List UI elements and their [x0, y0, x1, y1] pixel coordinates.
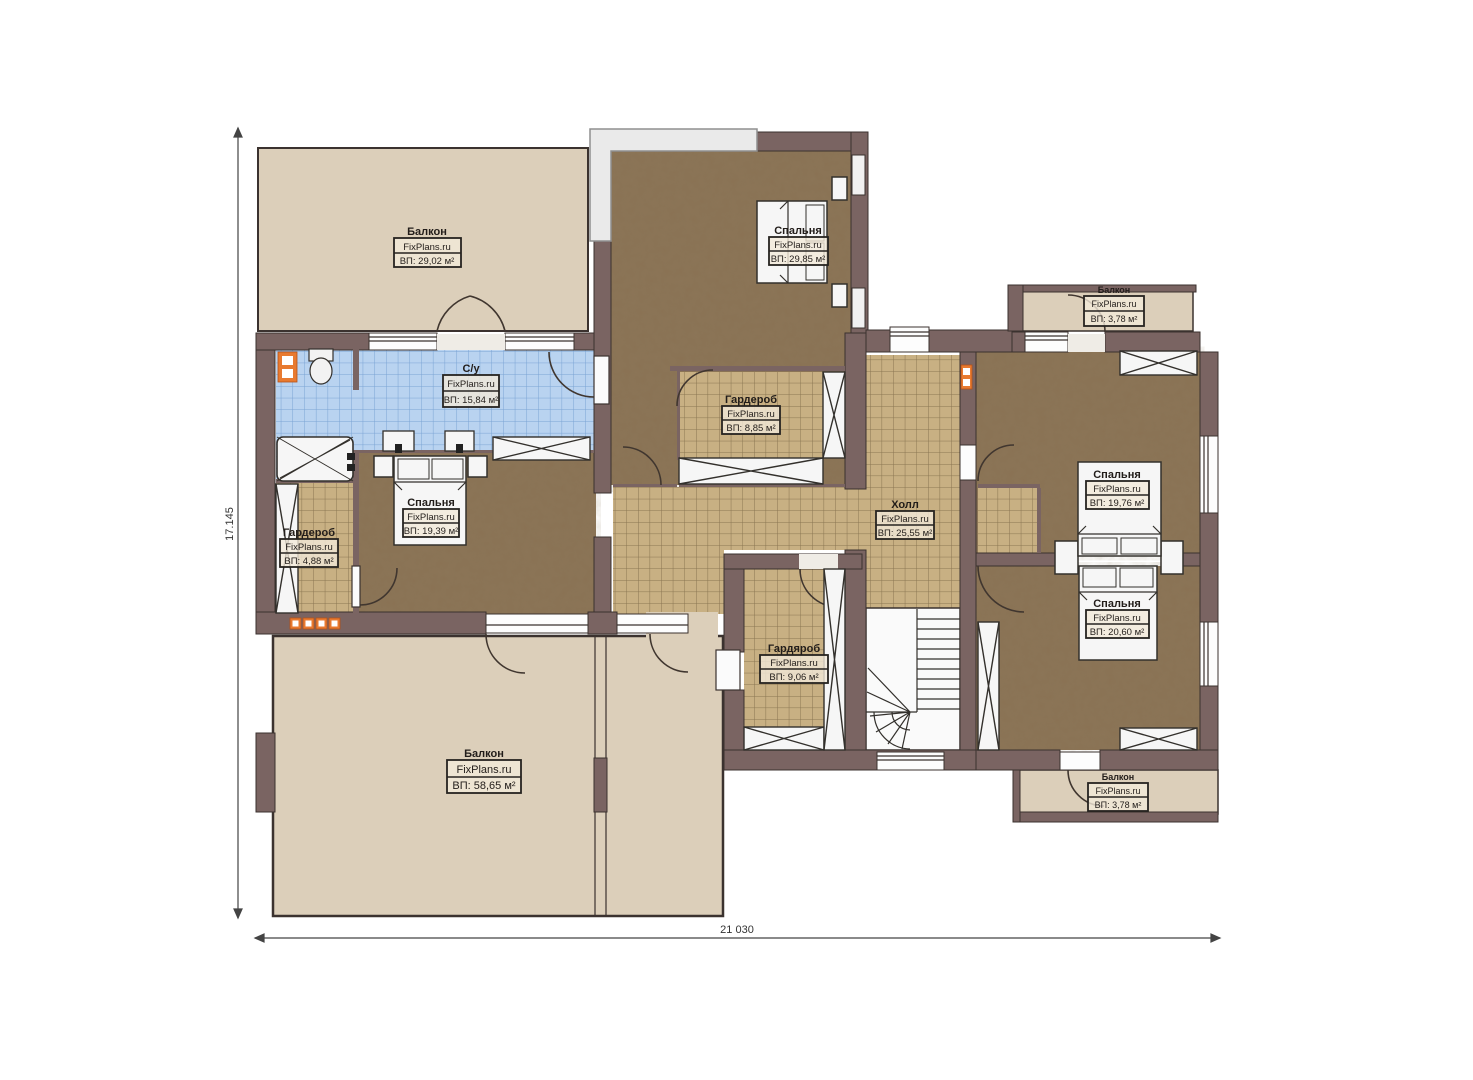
- svg-text:ВП: 3,78 м²: ВП: 3,78 м²: [1095, 800, 1142, 810]
- svg-text:FixPlans.ru: FixPlans.ru: [285, 542, 333, 553]
- svg-text:ВП: 19,76 м²: ВП: 19,76 м²: [1090, 498, 1145, 509]
- svg-text:Спальня: Спальня: [1093, 469, 1141, 481]
- svg-text:ВП: 58,65 м²: ВП: 58,65 м²: [452, 780, 516, 792]
- svg-text:FixPlans.ru: FixPlans.ru: [1093, 613, 1141, 624]
- svg-text:17.145: 17.145: [224, 507, 236, 541]
- svg-text:ВП: 9,06 м²: ВП: 9,06 м²: [769, 672, 818, 683]
- svg-text:Балкон: Балкон: [407, 226, 447, 238]
- svg-text:FixPlans.ru: FixPlans.ru: [770, 658, 818, 669]
- svg-text:FixPlans.ru: FixPlans.ru: [881, 514, 929, 525]
- svg-text:FixPlans.ru: FixPlans.ru: [727, 409, 775, 420]
- svg-text:ВП: 20,60 м²: ВП: 20,60 м²: [1090, 627, 1145, 638]
- svg-text:Балкон: Балкон: [1102, 772, 1135, 782]
- svg-text:ВП: 29,02 м²: ВП: 29,02 м²: [400, 256, 455, 267]
- svg-text:ВП: 19,39 м²: ВП: 19,39 м²: [404, 526, 459, 537]
- svg-text:FixPlans.ru: FixPlans.ru: [403, 242, 451, 253]
- svg-text:FixPlans.ru: FixPlans.ru: [456, 764, 511, 776]
- svg-text:Спальня: Спальня: [407, 497, 455, 509]
- svg-text:ВП: 29,85 м²: ВП: 29,85 м²: [771, 254, 826, 265]
- svg-text:Холл: Холл: [891, 499, 919, 511]
- svg-text:21 030: 21 030: [720, 924, 754, 936]
- svg-text:Балкон: Балкон: [464, 748, 504, 760]
- svg-text:FixPlans.ru: FixPlans.ru: [774, 240, 822, 251]
- svg-text:FixPlans.ru: FixPlans.ru: [447, 379, 495, 390]
- svg-text:С/у: С/у: [462, 363, 480, 375]
- svg-text:FixPlans.ru: FixPlans.ru: [1091, 299, 1136, 309]
- svg-text:ВП: 25,55 м²: ВП: 25,55 м²: [878, 528, 933, 539]
- svg-text:ВП: 4,88 м²: ВП: 4,88 м²: [284, 556, 333, 567]
- svg-text:Спальня: Спальня: [1093, 598, 1141, 610]
- svg-text:ВП: 15,84 м²: ВП: 15,84 м²: [444, 395, 499, 406]
- svg-text:FixPlans.ru: FixPlans.ru: [407, 512, 455, 523]
- svg-text:ВП: 3,78 м²: ВП: 3,78 м²: [1091, 314, 1138, 324]
- svg-text:Спальня: Спальня: [774, 225, 822, 237]
- svg-text:Гардероб: Гардероб: [283, 527, 335, 539]
- svg-text:Балкон: Балкон: [1098, 285, 1131, 295]
- svg-text:Гардяроб: Гардяроб: [768, 643, 820, 655]
- svg-text:ВП: 8,85 м²: ВП: 8,85 м²: [726, 423, 775, 434]
- svg-text:FixPlans.ru: FixPlans.ru: [1093, 484, 1141, 495]
- svg-text:FixPlans.ru: FixPlans.ru: [1095, 786, 1140, 796]
- svg-text:Гардероб: Гардероб: [725, 394, 777, 406]
